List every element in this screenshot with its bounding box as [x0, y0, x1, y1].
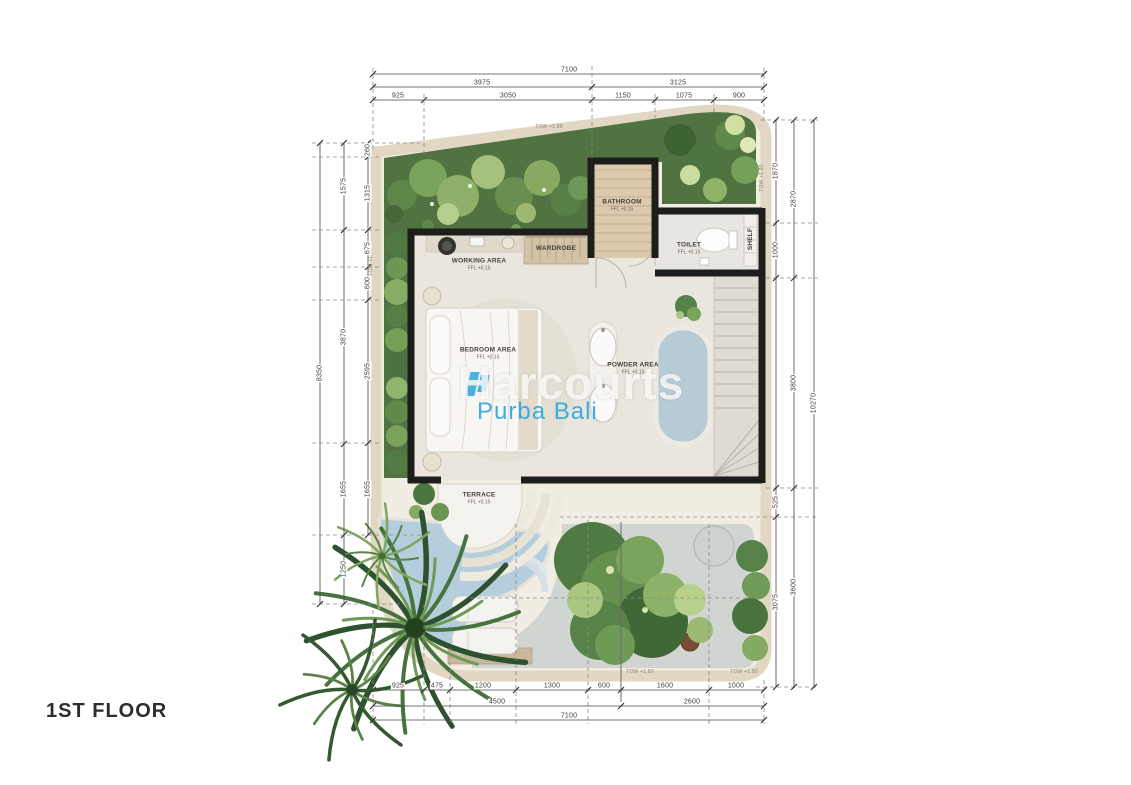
dim-bottom-segment: 1200: [474, 683, 492, 690]
room-label-bathroom: BATHROOM FFL +0.15: [602, 199, 641, 214]
dim-top-group: 3975: [473, 80, 491, 87]
dim-left-segment: 675: [365, 241, 372, 255]
toilet-fixture: [697, 228, 731, 252]
dim-left-total: 8350: [317, 364, 324, 382]
wall-note: TOW +1.90: [759, 164, 765, 191]
dim-top-segment: 900: [732, 93, 746, 100]
dim-top-segment: 925: [391, 93, 405, 100]
dim-bottom-segment: 600: [597, 683, 611, 690]
stool: [502, 237, 514, 249]
bed: [426, 308, 542, 452]
room-label-bedroom-area: BEDROOM AREA FFL +0.15: [460, 347, 516, 362]
bedside-table: [423, 287, 441, 305]
dim-bottom-segment: 925: [391, 683, 405, 690]
wall-note: TOW +1.90: [730, 669, 757, 675]
dim-left-group: 1655: [341, 480, 348, 498]
dim-bottom-group: 2600: [683, 699, 701, 706]
dim-right-group: 3800: [791, 374, 798, 392]
dim-top-total: 7100: [560, 67, 578, 74]
dim-bottom-segment: 1300: [543, 683, 561, 690]
dim-bottom-segment: 475: [430, 683, 444, 690]
room-label-shelf: SHELF: [747, 228, 755, 250]
dim-left-group: 1575: [341, 177, 348, 195]
dim-bottom-segment: 1600: [656, 683, 674, 690]
dim-top-segment: 1075: [675, 93, 693, 100]
dim-right-segment: 3075: [773, 593, 780, 611]
dim-left-segment: 1655: [365, 480, 372, 498]
dim-top-segment: 3050: [499, 93, 517, 100]
dim-left-group: 1250: [341, 560, 348, 578]
dim-left-segment: 600: [365, 276, 372, 290]
page-title: 1ST FLOOR: [46, 700, 167, 723]
dim-left-group: 3870: [341, 328, 348, 346]
dim-bottom-total: 7100: [560, 713, 578, 720]
dim-right-segment: 1000: [773, 241, 780, 259]
room-label-wardrobe: WARDROBE: [536, 245, 576, 253]
working-desk: [426, 234, 522, 255]
wall-note: TOW +1.90: [626, 669, 653, 675]
dim-right-segment: 525: [773, 495, 780, 509]
room-label-terrace: TERRACE FFL +0.15: [463, 492, 496, 507]
dim-left-segment: 1315: [365, 184, 372, 202]
wall-note: TOW +1.90: [535, 124, 562, 130]
dim-right-group: 3600: [791, 578, 798, 596]
dim-right-total: 10270: [811, 392, 818, 414]
dim-left-segment: 260: [365, 143, 372, 157]
floor-plan-drawing: [0, 0, 1131, 785]
room-label-working-area: WORKING AREA FFL +0.15: [452, 258, 507, 273]
bedside-table: [423, 453, 441, 471]
garden-bed-left: [384, 230, 410, 478]
plunge-pool: [656, 328, 710, 444]
room-label-powder-area: POWDER AREA FFL +0.15: [607, 362, 658, 377]
dim-top-group: 3125: [669, 80, 687, 87]
dim-right-segment: 1870: [773, 162, 780, 180]
dim-bottom-segment: 1000: [727, 683, 745, 690]
staircase: [714, 276, 759, 476]
round-planter: [694, 526, 734, 566]
dim-top-segment: 1150: [614, 93, 632, 100]
room-label-toilet: TOILET FFL +0.15: [677, 242, 701, 257]
dim-left-segment: 2595: [365, 362, 372, 380]
dim-bottom-group: 4500: [488, 699, 506, 706]
dim-right-group: 2870: [791, 190, 798, 208]
